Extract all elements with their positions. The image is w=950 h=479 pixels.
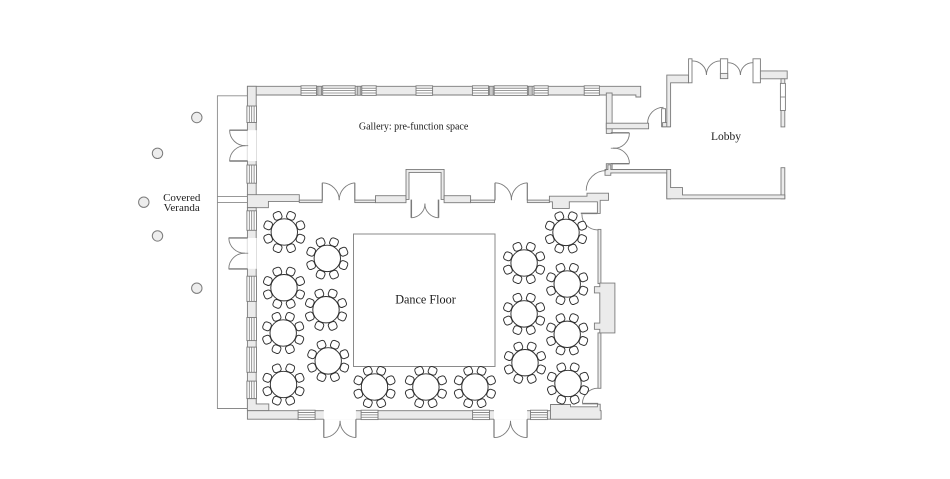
- svg-text:Dance Floor: Dance Floor: [395, 293, 456, 307]
- svg-text:Gallery: pre-function space: Gallery: pre-function space: [359, 122, 469, 133]
- svg-text:Veranda: Veranda: [164, 202, 200, 214]
- svg-text:Lobby: Lobby: [711, 131, 741, 143]
